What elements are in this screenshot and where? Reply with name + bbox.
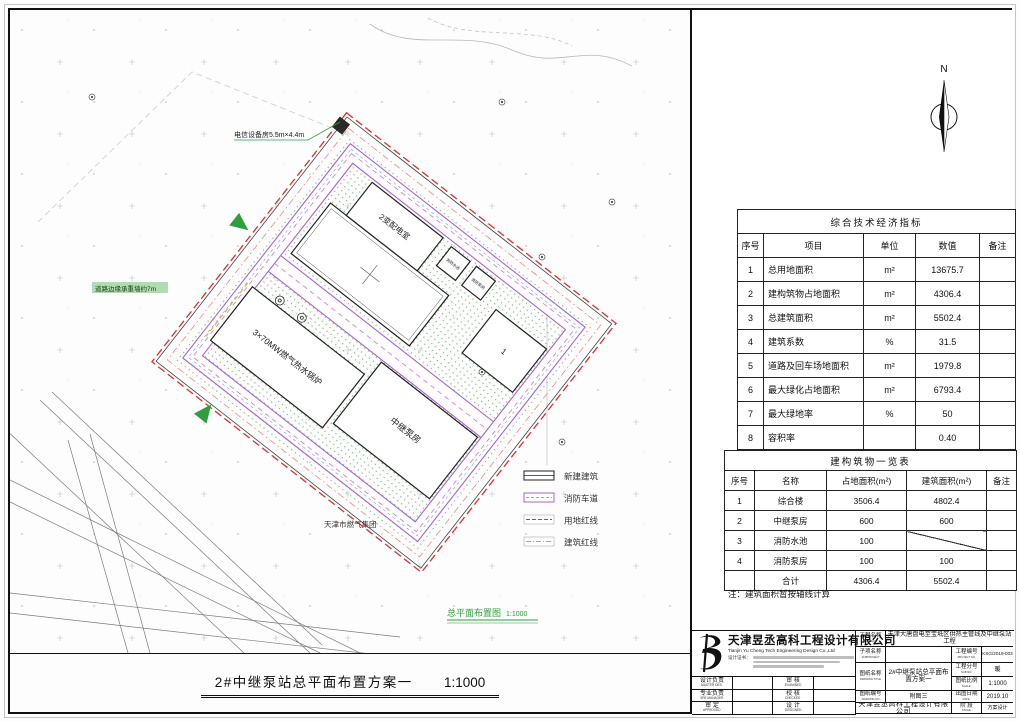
cert-fine-print [753, 655, 855, 668]
north-arrow: N [922, 62, 966, 154]
drawing-sheet: 2变配电室 3×70MW燃气热水锅炉 中继泵房 消防水池 消防泵房 1 [0, 0, 1020, 722]
table-cell: 1979.8 [916, 354, 980, 378]
col-header: 数值 [916, 234, 980, 258]
sign-cell: 设计负责MASTER DES. [692, 677, 733, 690]
telecom-room-label: 电信设备房5.5m×4.4m [234, 130, 304, 139]
field-label: 工程名称PROJECT [856, 631, 886, 647]
gas-group-label: 天津市燃气集团 [324, 519, 377, 529]
table-cell: 5502.4 [907, 571, 987, 591]
site-plan-area: 2变配电室 3×70MW燃气热水锅炉 中继泵房 消防水池 消防泵房 1 [10, 10, 690, 714]
table-cell: m² [864, 306, 916, 330]
company-name-cn: 天津昱丞高科工程设计有限公司 [728, 632, 854, 648]
col-header: 序号 [725, 471, 755, 491]
table-row: 1总用地面积m²13675.7 [738, 258, 1016, 282]
table-cell: m² [864, 378, 916, 402]
sign-cell: 校 核CHECKED [773, 690, 814, 703]
title-block-fields: 工程名称PROJECT 天津大唐盘电至宝坻区供热主管线及中继泵站工程 子项名称S… [856, 631, 1014, 715]
table-cell [980, 282, 1016, 306]
project-no-value: KSG/2019-003 [982, 647, 1013, 663]
table-cell [987, 571, 1017, 591]
table-cell [980, 306, 1016, 330]
sign-blank [814, 690, 855, 703]
table-cell: 13675.7 [916, 258, 980, 282]
table-cell: 31.5 [916, 330, 980, 354]
company-cert: 设计证书： [728, 655, 854, 668]
table-row: 4消防泵房100100 [725, 551, 1017, 571]
sheet-title-text: 2#中继泵站总平面布置方案一 [215, 675, 413, 690]
table-cell: 2 [725, 511, 755, 531]
right-panel: N 综合技术经济指标 序号 项目 单位 数值 备注 [690, 10, 1014, 714]
col-header: 项目 [764, 234, 864, 258]
table-cell: 总用地面积 [764, 258, 864, 282]
sign-cell: 专业负责SPE.MANAGER [692, 690, 733, 703]
field-label: 图纸名称DRAWING TITLE [856, 663, 886, 691]
company-names: 天津昱丞高科工程设计有限公司 Tianjin Yu Cheng Tech Eng… [727, 632, 854, 676]
table-cell [980, 258, 1016, 282]
drawing-title-value: 2#中继泵站总平面布置方案一 [886, 663, 952, 691]
sub-no-value: 暖 [982, 663, 1013, 677]
col-header: 名称 [755, 471, 827, 491]
field-label: 子项名称SUBPROJECT [856, 647, 886, 663]
table-cell: 2 [738, 282, 764, 306]
col-header: 占地面积(m²) [827, 471, 907, 491]
north-label: N [940, 64, 947, 75]
legend-label-firelane: 消防车道 [564, 494, 599, 504]
field-label: 图纸编号DRAWING NO. [856, 691, 886, 703]
table-cell: 600 [827, 511, 907, 531]
col-header: 单位 [864, 234, 916, 258]
buildings-table-title: 建构筑物一览表 [725, 451, 1017, 471]
table-cell [980, 426, 1016, 450]
company-header: 天津昱丞高科工程设计有限公司 Tianjin Yu Cheng Tech Eng… [692, 631, 855, 677]
table-cell: 4 [725, 551, 755, 571]
title-block: 天津昱丞高科工程设计有限公司 Tianjin Yu Cheng Tech Eng… [692, 630, 1014, 715]
table-cell: m² [864, 354, 916, 378]
table-cell: 600 [907, 511, 987, 531]
drawing-no-value: 附图三 [886, 691, 952, 703]
table-cell [987, 511, 1017, 531]
cert-label: 设计证书： [728, 655, 751, 668]
table-cell: 1 [738, 258, 764, 282]
table-cell: m² [864, 282, 916, 306]
table-cell: 6793.4 [916, 378, 980, 402]
col-header: 备注 [980, 234, 1016, 258]
table-cell: 最大绿地率 [764, 402, 864, 426]
field-label: 阶 段STAGE [952, 703, 982, 714]
table-row: 2建构筑物占地面积m²4306.4 [738, 282, 1016, 306]
scale-value: 1:1000 [982, 677, 1013, 691]
table-cell: 3506.4 [827, 491, 907, 511]
table-cell: 0.40 [916, 426, 980, 450]
plan-caption-scale: 1:1000 [506, 611, 528, 618]
col-header: 备注 [987, 471, 1017, 491]
table-header-row: 序号 名称 占地面积(m²) 建筑面积(m²) 备注 [725, 471, 1017, 491]
table-cell: 3 [738, 306, 764, 330]
table-cell: 道路及回车场地面积 [764, 354, 864, 378]
table-cell: 建筑系数 [764, 330, 864, 354]
sheet-frame: 2变配电室 3×70MW燃气热水锅炉 中继泵房 消防水池 消防泵房 1 [8, 8, 1012, 714]
table-row: 1综合楼3506.44802.4 [725, 491, 1017, 511]
table-row: 7最大绿地率%50 [738, 402, 1016, 426]
signature-grid: 设计负责MASTER DES. 审 核EXAMINED 专业负责SPE.MANA… [692, 677, 855, 715]
table-cell [980, 330, 1016, 354]
indicators-table: 综合技术经济指标 序号 项目 单位 数值 备注 1总用地面积m²13675.72… [737, 209, 1016, 474]
site-plan-drawing: 2变配电室 3×70MW燃气热水锅炉 中继泵房 消防水池 消防泵房 1 [10, 10, 690, 653]
company-name-en: Tianjin Yu Cheng Tech Engineering Design… [728, 648, 848, 654]
sign-blank [733, 677, 773, 690]
table-cell: 消防泵房 [755, 551, 827, 571]
subproject-value [886, 647, 952, 663]
legend-label-building: 新建建筑 [564, 472, 599, 482]
table-cell: 100 [827, 531, 907, 551]
bottom-company-value: 天津昱丞高科工程设计有限公司 [856, 703, 952, 714]
buildings-table: 建构筑物一览表 序号 名称 占地面积(m²) 建筑面积(m²) 备注 1综合楼3… [724, 450, 1017, 591]
table-title-row: 综合技术经济指标 [738, 210, 1016, 234]
table-cell [987, 551, 1017, 571]
table-cell: m² [864, 258, 916, 282]
table-row: 2中继泵房600600 [725, 511, 1017, 531]
table-row: 3消防水池100 [725, 531, 1017, 551]
date-value: 2019.10 [982, 691, 1013, 703]
sign-blank [814, 702, 855, 715]
col-header: 建筑面积(m²) [907, 471, 987, 491]
table-cell: 中继泵房 [755, 511, 827, 531]
sign-cell: 设 计DESIGNED [773, 702, 814, 715]
table-cell: % [864, 402, 916, 426]
table-cell: 1 [725, 491, 755, 511]
table-row: 4建筑系数%31.5 [738, 330, 1016, 354]
table-cell [980, 354, 1016, 378]
sheet-title-scale: 1:1000 [444, 675, 485, 690]
table-cell [864, 426, 916, 450]
sign-blank [814, 677, 855, 690]
sign-blank [733, 690, 773, 703]
table-cell [980, 378, 1016, 402]
table-cell [987, 491, 1017, 511]
table-cell: 3 [725, 531, 755, 551]
table-row: 3总建筑面积m²5502.4 [738, 306, 1016, 330]
table-cell: 4306.4 [827, 571, 907, 591]
table-cell: 消防水池 [755, 531, 827, 551]
field-label: 工程分号SUB NO. [952, 663, 982, 677]
table-cell [907, 531, 987, 551]
sign-blank [733, 702, 773, 715]
field-label: 工程编号PROJECT NO. [952, 647, 982, 663]
sheet-title: 2#中继泵站总平面布置方案一 1:1000 [201, 671, 500, 698]
field-label: 图纸比例SCALE [952, 677, 982, 691]
table-note: 注：建筑面积暂按轴线计算 [728, 588, 830, 600]
table-cell: 100 [827, 551, 907, 571]
sign-cell: 审 定APPROVED [692, 702, 733, 715]
table-cell: % [864, 330, 916, 354]
table-cell: 50 [916, 402, 980, 426]
table-cell: 4306.4 [916, 282, 980, 306]
table-cell: 建构筑物占地面积 [764, 282, 864, 306]
stage-value: 方案设计 [982, 703, 1013, 714]
sign-cell: 审 核EXAMINED [773, 677, 814, 690]
plan-caption: 总平面布置图 [447, 607, 501, 618]
table-title-row: 建构筑物一览表 [725, 451, 1017, 471]
table-cell: 8 [738, 426, 764, 450]
field-label: 出图日期DATE [952, 691, 982, 703]
table-cell: 容积率 [764, 426, 864, 450]
table-cell: 6 [738, 378, 764, 402]
table-cell: 5502.4 [916, 306, 980, 330]
table-cell: 4 [738, 330, 764, 354]
table-cell [987, 531, 1017, 551]
table-cell: 综合楼 [755, 491, 827, 511]
table-row: 8容积率0.40 [738, 426, 1016, 450]
table-cell: 4802.4 [907, 491, 987, 511]
road-note-label: 道路边缘承重墙约7m [95, 284, 156, 293]
table-row: 6最大绿化占地面积m²6793.4 [738, 378, 1016, 402]
bottom-title-strip: 2#中继泵站总平面布置方案一 1:1000 [10, 653, 690, 715]
table-cell: 7 [738, 402, 764, 426]
col-header: 序号 [738, 234, 764, 258]
project-name-value: 天津大唐盘电至宝坻区供热主管线及中继泵站工程 [886, 631, 1013, 647]
table-row: 5道路及回车场地面积m²1979.8 [738, 354, 1016, 378]
table-cell [980, 402, 1016, 426]
title-block-company: 天津昱丞高科工程设计有限公司 Tianjin Yu Cheng Tech Eng… [692, 631, 856, 715]
table-cell: 100 [907, 551, 987, 571]
legend-label-building-redline: 建筑红线 [564, 538, 599, 548]
table-header-row: 序号 项目 单位 数值 备注 [738, 234, 1016, 258]
legend-label-land-redline: 用地红线 [564, 516, 599, 526]
indicators-table-title: 综合技术经济指标 [738, 210, 1016, 234]
company-logo [693, 632, 727, 674]
table-cell: 最大绿化占地面积 [764, 378, 864, 402]
table-cell: 总建筑面积 [764, 306, 864, 330]
table-cell: 5 [738, 354, 764, 378]
